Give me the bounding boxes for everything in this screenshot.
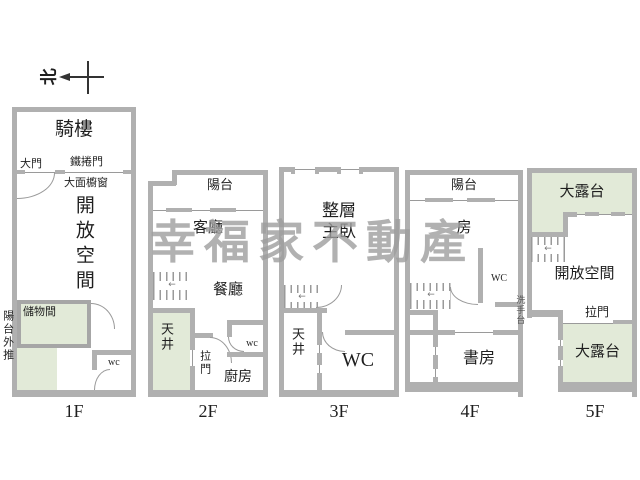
room-label-dining: 餐廳 [188, 282, 268, 299]
floor-5-plan: 大露台 ← 開放空間 拉門 大露台 [527, 168, 637, 397]
room-label-wc: wc [240, 338, 264, 350]
window-line [319, 345, 320, 353]
washbasin-label: 洗手台 [515, 295, 525, 331]
wall-segment [12, 390, 136, 397]
window-line [435, 369, 436, 377]
floor-4-label: 4F [405, 401, 535, 422]
door-post [315, 167, 319, 174]
stair-direction-arrow-icon: ← [533, 245, 563, 254]
door-post [359, 167, 363, 174]
floor-3-label: 3F [279, 401, 399, 422]
window-line [341, 169, 359, 170]
watermark-text: 幸福家不動產 [150, 206, 474, 272]
door-swing-arc [316, 285, 342, 308]
wall-segment [279, 390, 399, 397]
window-segment [611, 212, 625, 216]
stairs: ← [531, 237, 565, 262]
wall-segment [92, 350, 131, 355]
wall-segment [317, 373, 322, 390]
floor-2-label: 2F [148, 401, 268, 422]
stairs: ← [153, 272, 191, 300]
sliding-door-line [192, 350, 193, 366]
wall-segment [345, 330, 394, 335]
room-label-balcony: 陽台 [405, 178, 523, 193]
wall-segment [148, 390, 268, 397]
floor-1-label: 1F [12, 401, 136, 422]
wall-segment [433, 335, 438, 347]
floor-1-plan: 騎樓 大門 鐵捲門 大面櫥窗 開放空間 儲物間 wc [12, 107, 136, 397]
door-swing-arc [94, 369, 110, 390]
window-line [319, 365, 320, 373]
door-opening-line [455, 332, 493, 333]
storage-room: 儲物間 [17, 300, 91, 348]
stair-direction-arrow-icon: ← [155, 281, 189, 290]
floor-3-plan: 整層 主臥 ← 天井 WC [279, 167, 399, 397]
floor-2-plan: 陽台 客廳 ← 餐廳 天井 拉門 廚房 wc [148, 170, 268, 397]
wall-segment [527, 168, 637, 173]
north-arrow-tick [87, 61, 89, 94]
door-post [55, 170, 65, 174]
wall-segment [317, 313, 322, 345]
window-segment [467, 198, 495, 202]
wall-segment [433, 315, 438, 330]
door-swing-arc [91, 303, 115, 329]
stairs: ← [410, 283, 452, 309]
door-post [291, 167, 295, 174]
main-door-label: 大門 [20, 158, 42, 171]
display-window-label: 大面櫥窗 [64, 177, 108, 190]
room-label-wc: WC [322, 349, 394, 372]
wall-segment [227, 352, 268, 357]
door-swing-arc [450, 287, 478, 305]
floor-4-plan: 陽台 房 WC ← 書房 [405, 170, 523, 397]
stairs: ← [284, 285, 320, 310]
balcony-extension-label: 陽台外推 [1, 310, 14, 398]
window-segment [585, 212, 599, 216]
wall-segment [405, 170, 410, 392]
room-label-balcony: 陽台 [172, 178, 268, 193]
room-label-open-space: 開放空間 [72, 195, 94, 317]
wall-segment [558, 382, 637, 392]
north-label: 北 [40, 68, 60, 85]
door-post [123, 170, 131, 174]
stair-direction-arrow-icon: ← [412, 291, 450, 300]
room-label-light-well: 天井 [289, 327, 304, 363]
room-label-light-well: 天井 [158, 322, 173, 358]
room-label-kitchen: 廚房 [208, 370, 268, 386]
wall-segment [190, 366, 195, 390]
wall-segment [227, 320, 268, 325]
room-label-storage: 儲物間 [23, 306, 56, 319]
floor-plan-canvas: 北 幸福家不動產 騎樓 大門 鐵捲門 大面櫥窗 開放空間 儲物間 wc 陽台外推… [0, 0, 640, 480]
floor-5-label: 5F [540, 401, 640, 422]
wall-segment [433, 377, 438, 385]
door-post [337, 167, 341, 174]
wall-segment [405, 170, 523, 175]
wall-segment [227, 320, 232, 337]
room-label-wc: wc [108, 357, 120, 369]
room-label-wc: WC [481, 273, 517, 285]
room-label-terrace-top: 大露台 [532, 184, 632, 201]
wall-segment [190, 313, 195, 350]
window-line [295, 169, 315, 170]
room-label-study: 書房 [435, 350, 523, 368]
wall-segment [172, 170, 268, 175]
wall-segment [405, 382, 523, 392]
stair-direction-arrow-icon: ← [286, 293, 318, 302]
wall-segment [92, 350, 97, 370]
door-swing-arc [17, 173, 55, 199]
sliding-door-label: 拉門 [567, 306, 627, 320]
wall-segment [131, 107, 136, 397]
roller-door-label: 鐵捲門 [70, 156, 103, 169]
room-label-terrace-bottom: 大露台 [563, 344, 632, 361]
wall-segment [12, 107, 136, 112]
window-segment [425, 198, 453, 202]
room-label-arcade: 騎樓 [12, 119, 136, 141]
wall-segment [405, 330, 455, 335]
room-label-open-space: 開放空間 [532, 266, 637, 283]
green-strip [17, 348, 57, 390]
terrace-top-area [532, 215, 563, 233]
